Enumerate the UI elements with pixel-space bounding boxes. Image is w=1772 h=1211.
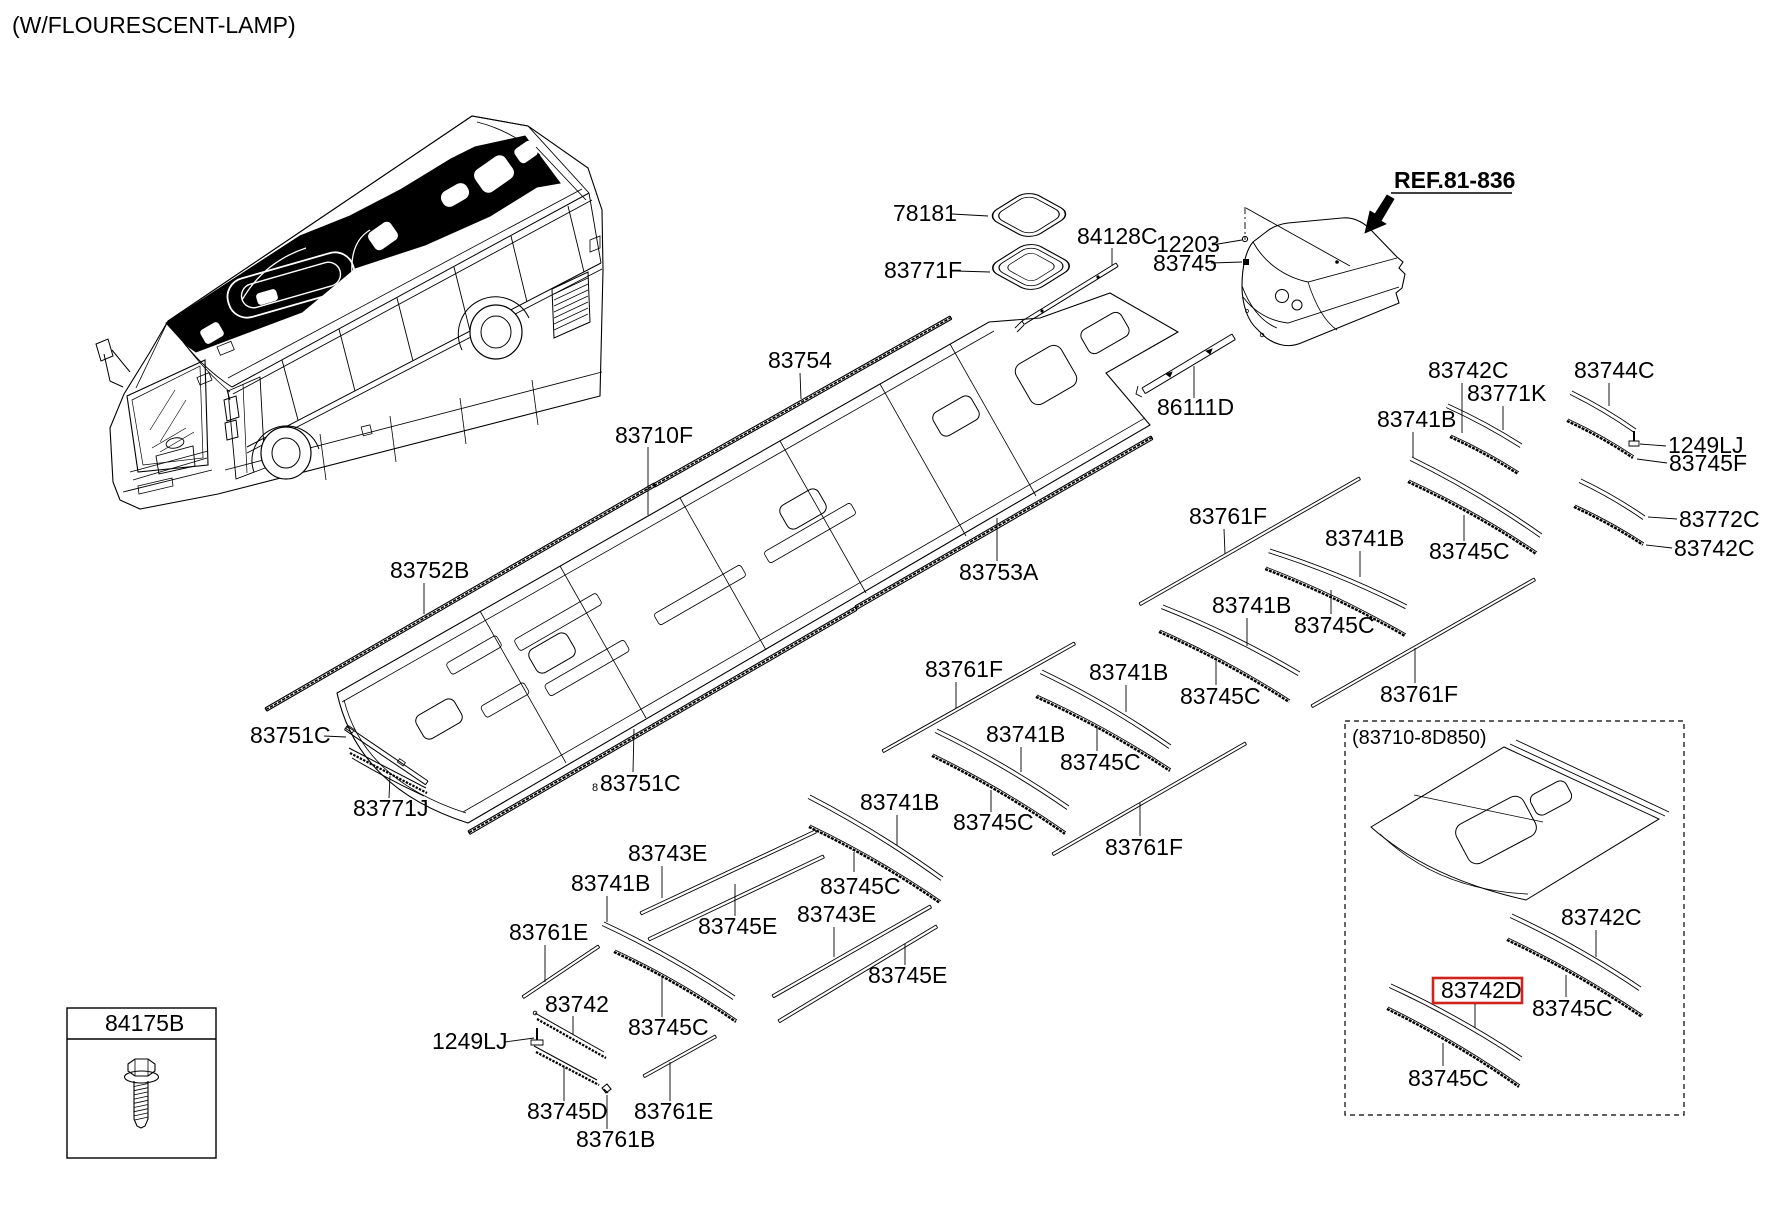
svg-text:83761E: 83761E: [634, 1098, 713, 1124]
svg-text:83745C: 83745C: [1180, 683, 1261, 709]
svg-text:(W/FLOURESCENT-LAMP): (W/FLOURESCENT-LAMP): [12, 12, 296, 38]
svg-text:83745C: 83745C: [953, 809, 1034, 835]
svg-text:83743E: 83743E: [797, 901, 876, 927]
svg-text:83741B: 83741B: [1325, 525, 1404, 551]
svg-text:83751C: 83751C: [250, 722, 331, 748]
svg-text:83742C: 83742C: [1674, 535, 1755, 561]
svg-text:83761F: 83761F: [925, 656, 1003, 682]
svg-text:83742C: 83742C: [1561, 904, 1642, 930]
svg-text:83745: 83745: [1153, 250, 1217, 276]
svg-text:84175B: 84175B: [105, 1010, 184, 1036]
svg-text:83745C: 83745C: [1294, 612, 1375, 638]
svg-text:83745F: 83745F: [1669, 450, 1747, 476]
svg-text:83745C: 83745C: [1408, 1065, 1489, 1091]
svg-text:83741B: 83741B: [1089, 659, 1168, 685]
svg-text:83745E: 83745E: [698, 913, 777, 939]
svg-text:83761F: 83761F: [1189, 503, 1267, 529]
svg-text:83741B: 83741B: [986, 721, 1065, 747]
svg-text:1249LJ: 1249LJ: [432, 1028, 507, 1054]
svg-text:83745C: 83745C: [1429, 538, 1510, 564]
svg-text:83745D: 83745D: [527, 1098, 608, 1124]
svg-text:8: 8: [592, 782, 598, 794]
svg-text:83744C: 83744C: [1574, 357, 1655, 383]
svg-text:83742D: 83742D: [1441, 977, 1522, 1003]
svg-text:83710F: 83710F: [615, 422, 693, 448]
svg-text:83745C: 83745C: [1060, 749, 1141, 775]
svg-text:83741B: 83741B: [860, 789, 939, 815]
svg-text:83745C: 83745C: [1532, 995, 1613, 1021]
svg-text:83741B: 83741B: [1212, 592, 1291, 618]
svg-text:84128C: 84128C: [1077, 223, 1158, 249]
svg-text:83751C: 83751C: [600, 770, 681, 796]
svg-text:78181: 78181: [893, 200, 957, 226]
svg-text:83761F: 83761F: [1105, 834, 1183, 860]
svg-text:83741B: 83741B: [1377, 406, 1456, 432]
svg-text:83745E: 83745E: [868, 962, 947, 988]
svg-text:83742: 83742: [545, 991, 609, 1017]
svg-text:86111D: 86111D: [1157, 394, 1234, 420]
svg-text:83761F: 83761F: [1380, 681, 1458, 707]
svg-text:83761B: 83761B: [576, 1126, 655, 1152]
svg-text:83741B: 83741B: [571, 870, 650, 896]
svg-text:83771J: 83771J: [353, 795, 428, 821]
svg-text:83753A: 83753A: [959, 559, 1039, 585]
svg-text:REF.81-836: REF.81-836: [1394, 167, 1515, 193]
svg-text:83761E: 83761E: [509, 919, 588, 945]
svg-text:83743E: 83743E: [628, 840, 707, 866]
svg-text:83752B: 83752B: [390, 557, 469, 583]
svg-text:83771K: 83771K: [1467, 380, 1547, 406]
svg-text:83754: 83754: [768, 347, 832, 373]
svg-text:83772C: 83772C: [1679, 506, 1760, 532]
svg-text:83745C: 83745C: [820, 873, 901, 899]
svg-text:83745C: 83745C: [628, 1014, 709, 1040]
svg-text:83771F: 83771F: [884, 257, 962, 283]
svg-text:(83710-8D850): (83710-8D850): [1352, 727, 1487, 749]
